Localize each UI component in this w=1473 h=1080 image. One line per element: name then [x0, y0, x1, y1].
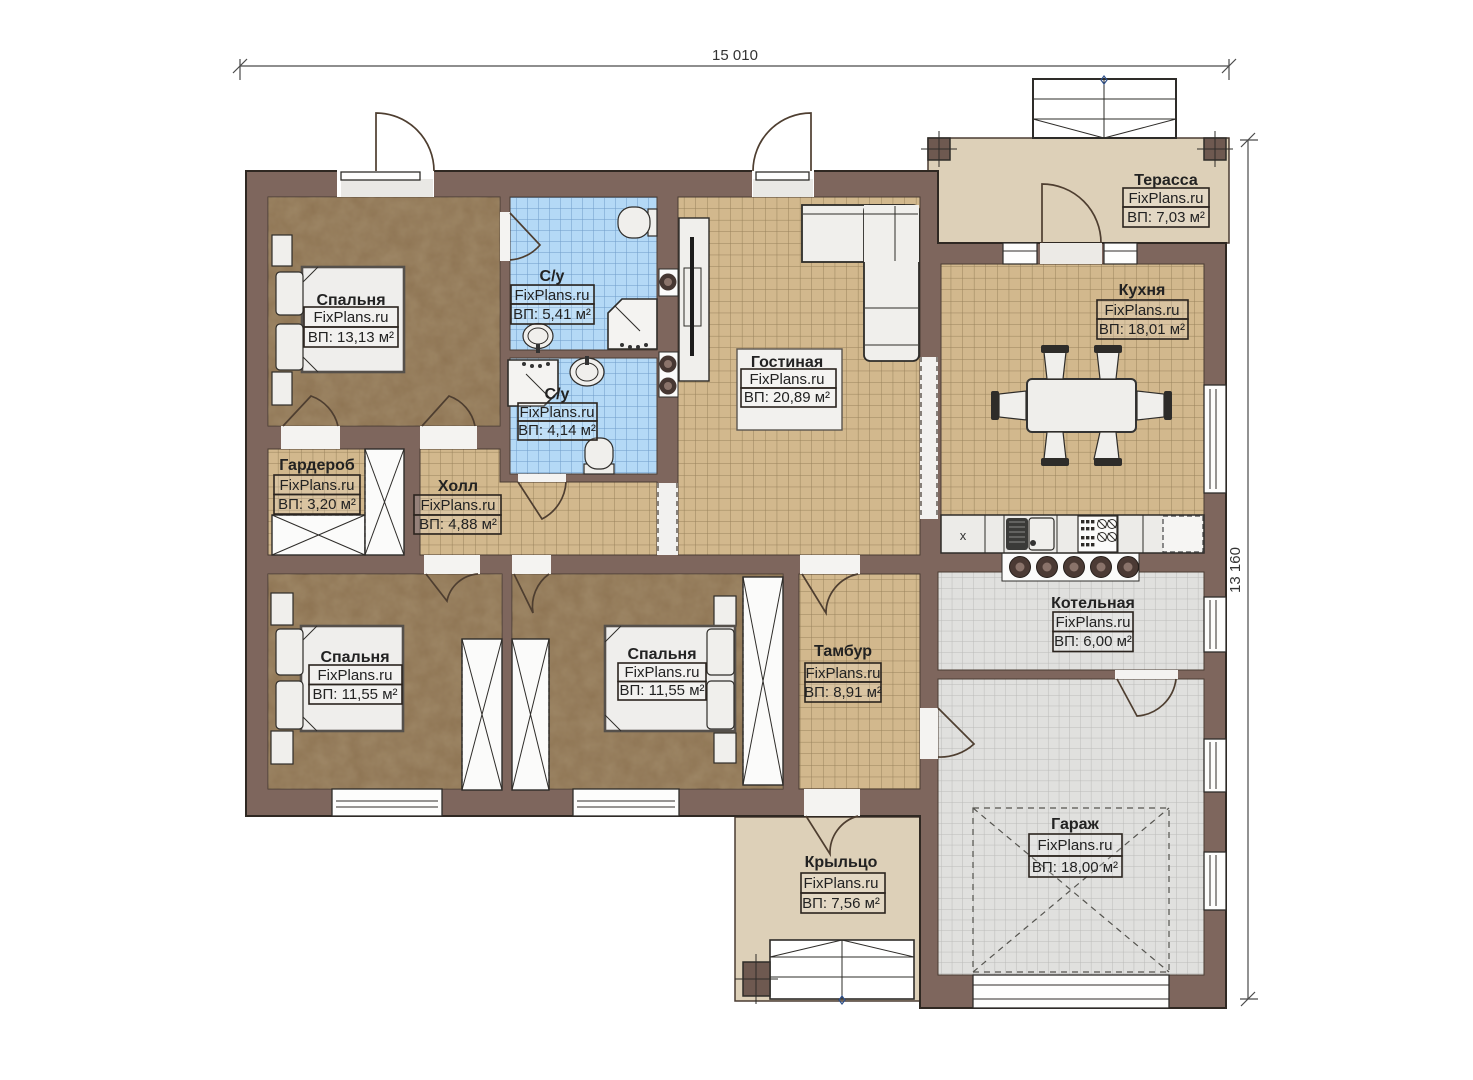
svg-text:FixPlans.ru: FixPlans.ru: [1104, 302, 1179, 319]
svg-text:ВП: 13,13 м²: ВП: 13,13 м²: [308, 329, 394, 346]
svg-text:FixPlans.ru: FixPlans.ru: [749, 371, 824, 388]
svg-text:FixPlans.ru: FixPlans.ru: [279, 477, 354, 494]
svg-text:Гардероб: Гардероб: [279, 457, 355, 474]
svg-text:ВП: 18,00 м²: ВП: 18,00 м²: [1032, 859, 1118, 876]
svg-text:FixPlans.ru: FixPlans.ru: [519, 404, 594, 421]
svg-text:ВП: 4,14 м²: ВП: 4,14 м²: [518, 422, 596, 439]
svg-text:Крыльцо: Крыльцо: [805, 854, 878, 871]
svg-text:ВП: 11,55 м²: ВП: 11,55 м²: [312, 686, 397, 703]
svg-text:FixPlans.ru: FixPlans.ru: [1037, 837, 1112, 854]
svg-text:ВП: 7,03 м²: ВП: 7,03 м²: [1127, 209, 1205, 226]
svg-text:ВП: 7,56 м²: ВП: 7,56 м²: [802, 895, 880, 912]
svg-text:Тамбур: Тамбур: [814, 643, 872, 660]
svg-text:С/у: С/у: [540, 268, 565, 285]
svg-text:FixPlans.ru: FixPlans.ru: [313, 309, 388, 326]
svg-text:FixPlans.ru: FixPlans.ru: [420, 497, 495, 514]
svg-text:FixPlans.ru: FixPlans.ru: [317, 667, 392, 684]
svg-text:Гараж: Гараж: [1051, 816, 1099, 833]
svg-text:15 010: 15 010: [712, 47, 758, 64]
svg-text:ВП: 3,20 м²: ВП: 3,20 м²: [278, 496, 356, 513]
svg-text:FixPlans.ru: FixPlans.ru: [803, 875, 878, 892]
svg-text:С/у: С/у: [545, 386, 570, 403]
svg-text:ВП: 5,41 м²: ВП: 5,41 м²: [513, 306, 591, 323]
svg-text:Спальня: Спальня: [627, 646, 696, 663]
svg-text:Спальня: Спальня: [320, 649, 389, 666]
svg-text:x: x: [960, 528, 967, 543]
svg-text:Холл: Холл: [438, 478, 478, 495]
svg-text:ВП: 4,88 м²: ВП: 4,88 м²: [419, 516, 497, 533]
svg-text:ВП: 18,01 м²: ВП: 18,01 м²: [1099, 321, 1185, 338]
svg-text:FixPlans.ru: FixPlans.ru: [1055, 614, 1130, 631]
svg-text:FixPlans.ru: FixPlans.ru: [1128, 190, 1203, 207]
svg-text:ВП: 11,55 м²: ВП: 11,55 м²: [619, 682, 704, 699]
svg-text:Котельная: Котельная: [1051, 595, 1135, 612]
svg-text:ВП: 20,89 м²: ВП: 20,89 м²: [744, 389, 830, 406]
svg-text:FixPlans.ru: FixPlans.ru: [624, 664, 699, 681]
svg-text:Терасса: Терасса: [1134, 172, 1198, 189]
svg-text:FixPlans.ru: FixPlans.ru: [514, 287, 589, 304]
svg-text:13 160: 13 160: [1227, 547, 1244, 593]
svg-text:FixPlans.ru: FixPlans.ru: [805, 665, 880, 682]
svg-text:ВП: 6,00 м²: ВП: 6,00 м²: [1054, 633, 1132, 650]
svg-text:ВП: 8,91 м²: ВП: 8,91 м²: [804, 684, 882, 701]
svg-text:Кухня: Кухня: [1119, 282, 1166, 299]
